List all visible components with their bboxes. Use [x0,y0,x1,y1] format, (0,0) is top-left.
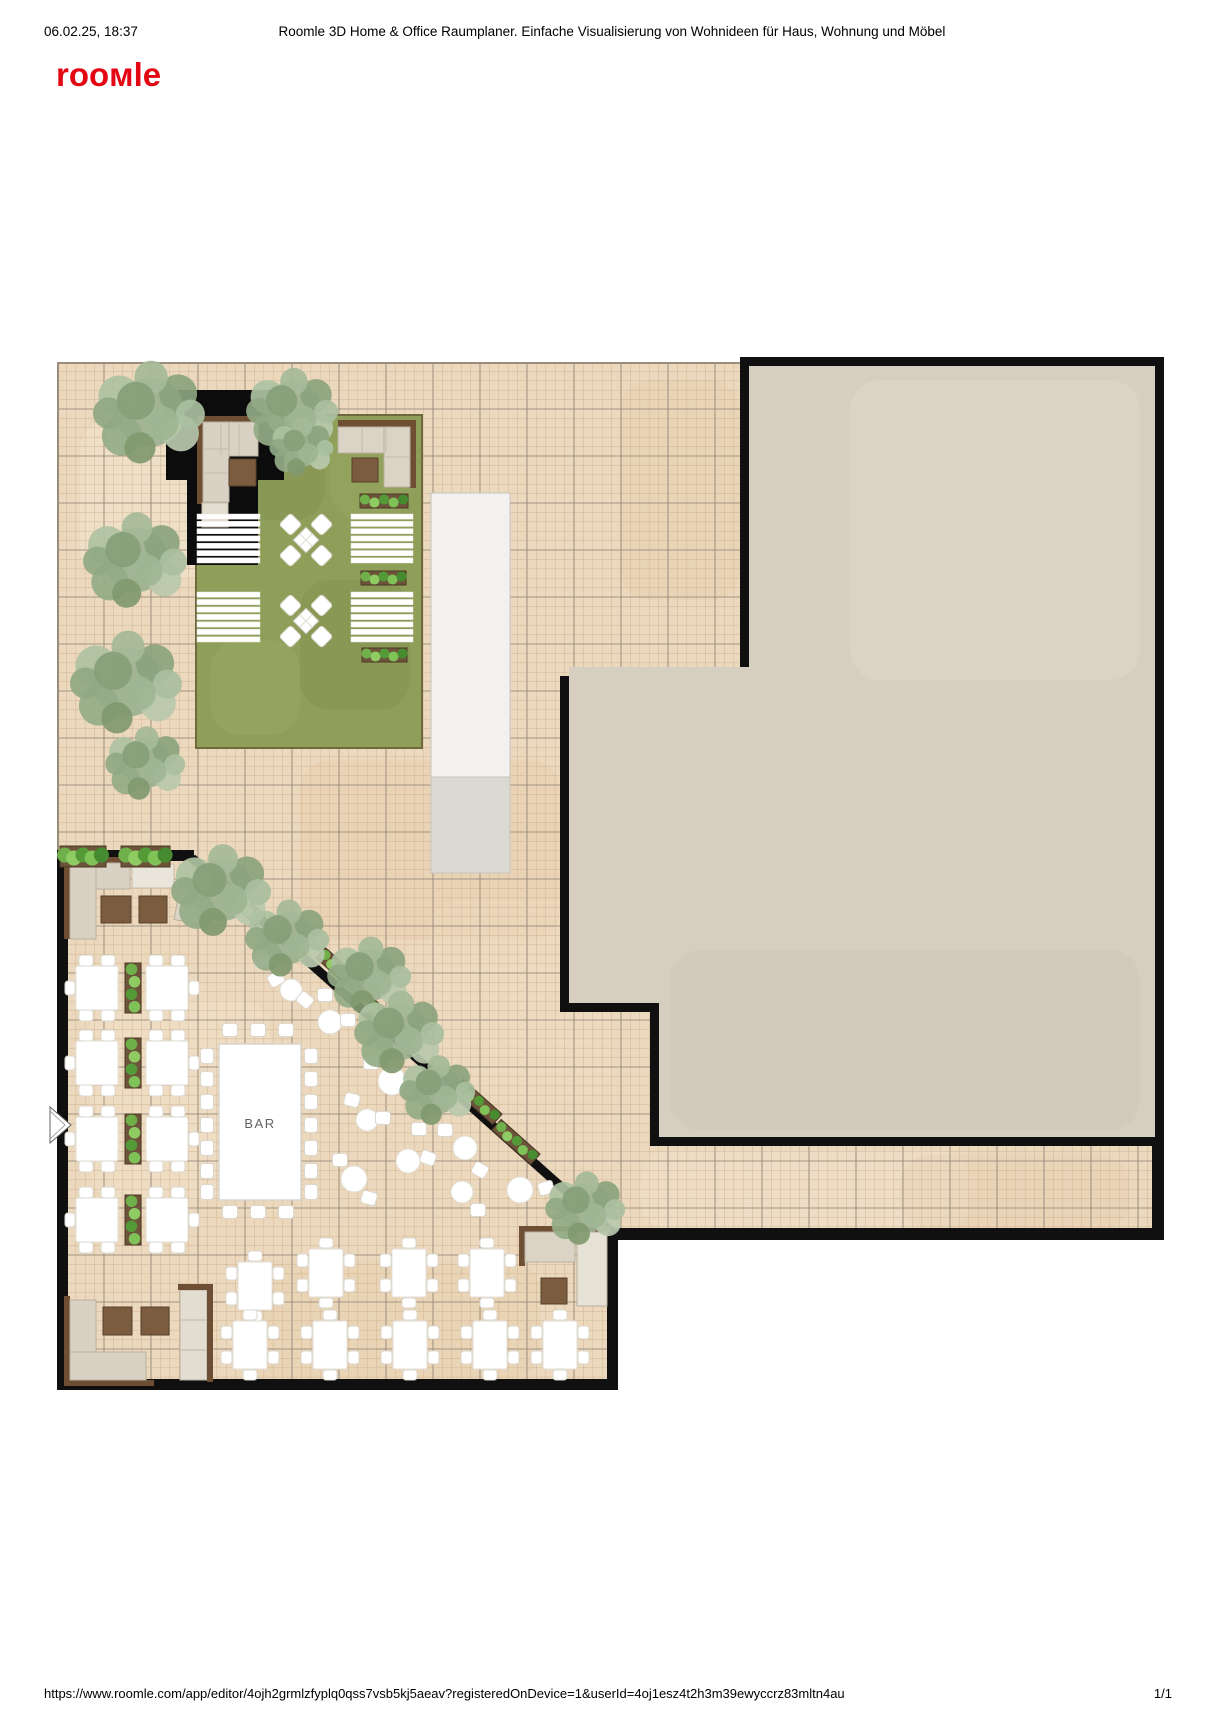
planter [361,648,407,662]
picnic-table-set [351,514,413,563]
chair [201,1095,214,1110]
chair [201,1185,214,1200]
chair [318,989,333,1002]
sofa-edge [207,1288,213,1382]
chair [201,1164,214,1179]
planter [360,494,408,508]
round-table [453,1136,477,1160]
sofa-edge [178,1284,213,1290]
planter [125,963,141,1013]
lounge-sofa [203,422,229,502]
round-table [507,1177,533,1203]
round-table [356,1109,378,1131]
counter-lower [431,777,510,873]
floor-shading [620,380,740,600]
sofa-edge [64,1380,154,1386]
chair [201,1141,214,1156]
round-table [318,1010,342,1034]
round-table [341,1166,367,1192]
chair [305,1072,318,1087]
planter [125,1195,141,1245]
planter [125,1114,141,1164]
floor-shading [900,1155,1130,1230]
coffee-table [229,459,256,486]
sofa-edge [64,1296,70,1386]
coffee-table [103,1307,132,1335]
lounge-sofa [132,864,174,888]
planter [57,846,109,867]
chair [305,1049,318,1064]
sofa-edge [64,857,70,939]
chair [223,1206,238,1219]
page-indicator: 1/1 [1154,1686,1172,1701]
lounge-sofa [70,1352,146,1380]
floor-shading [850,380,1140,680]
chair [376,1112,391,1125]
chair [412,1123,427,1136]
bar-label: BAR [244,1116,275,1131]
footer-url: https://www.roomle.com/app/editor/4ojh2g… [44,1686,845,1701]
chair [341,1014,356,1027]
picnic-table-set [197,592,260,642]
coffee-table [541,1278,567,1304]
chair [251,1024,266,1037]
outer-wall [612,1228,1164,1240]
planter [125,1038,141,1088]
round-table [396,1149,420,1173]
coffee-table [139,896,167,923]
chair [279,1206,294,1219]
coffee-table [101,896,131,923]
planter [360,571,406,585]
chair [471,1204,486,1217]
chair [201,1072,214,1087]
outer-wall [1152,1146,1164,1234]
shelf [180,1290,207,1380]
sofa-edge [519,1226,525,1266]
chair [223,1024,238,1037]
chair [305,1118,318,1133]
coffee-table [141,1307,169,1335]
chair [305,1141,318,1156]
picnic-table-set [351,592,413,642]
counter [431,493,510,777]
floorplan-canvas: BAR [0,0,1224,1732]
chair [305,1164,318,1179]
room-wall-right [607,1228,618,1390]
chair [305,1095,318,1110]
chair [438,1124,453,1137]
chair [201,1118,214,1133]
chair [279,1024,294,1037]
lounge-sofa [70,863,96,939]
floor-shading [210,640,300,735]
print-page: 06.02.25, 18:37 Roomle 3D Home & Office … [0,0,1224,1732]
picnic-table-set [197,514,260,563]
chair [305,1185,318,1200]
coffee-table [352,458,378,482]
sofa-edge [338,420,416,427]
chair [201,1049,214,1064]
chair [333,1154,348,1167]
floor-shading [670,950,1140,1130]
chair [251,1206,266,1219]
round-table [451,1181,473,1203]
planter [118,846,172,867]
